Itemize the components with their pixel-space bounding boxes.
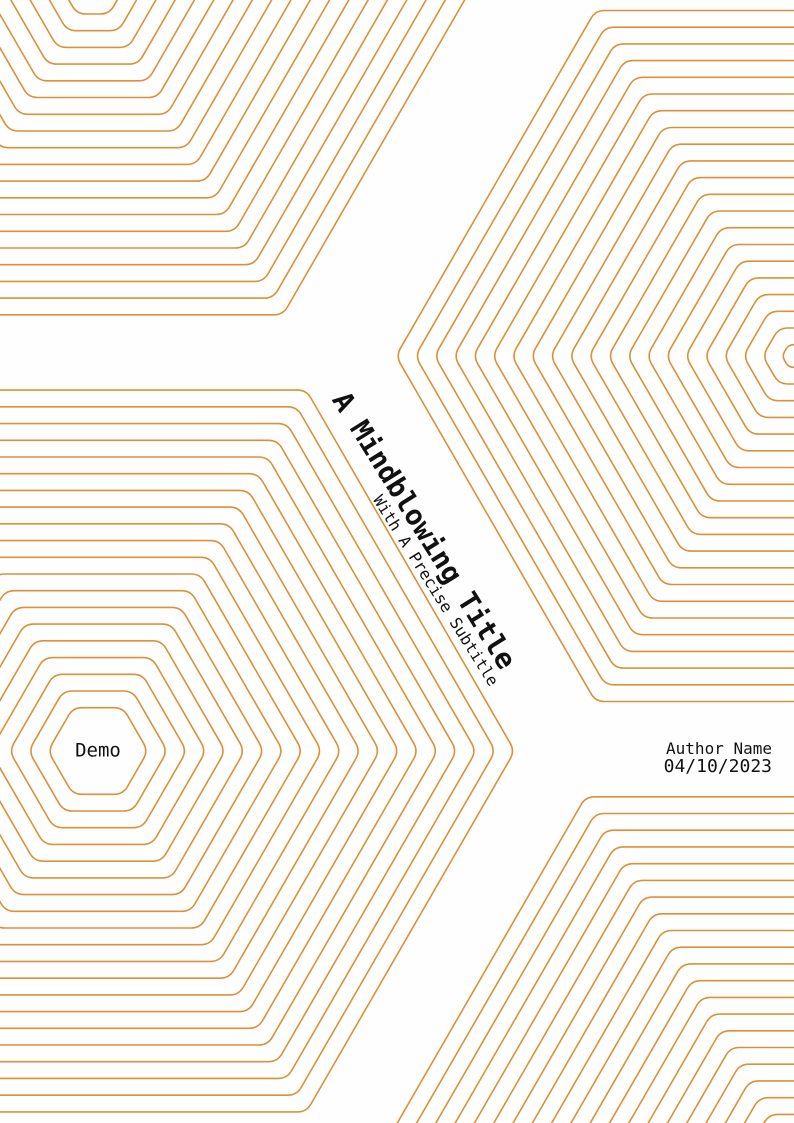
hexagon-ring [0,591,281,912]
hexagon-ring [0,0,316,181]
hexagon-ring [639,1114,794,1123]
hexagon-pattern [0,0,794,1123]
hexagon-ring [630,211,794,501]
hexagon-ring [0,0,374,231]
hexagon-ring [0,0,413,265]
hexagon-ring [746,311,794,400]
hexagon-ring [24,0,161,47]
hexagon-ring [611,194,794,517]
hexagon-ring [408,914,794,1123]
hexagon-ring [514,111,794,602]
hexagon-ring [572,161,794,551]
hexagon-ring [437,44,794,668]
hexagon-ring [649,228,794,485]
hexagon-ring [427,931,794,1123]
hexagon-ring [369,880,794,1123]
hexagon-ring [0,557,319,944]
hexagon-ring [0,0,258,131]
hexagon-ring [765,328,794,384]
hexagon-ring [44,0,143,31]
hexagon-ring [0,524,358,978]
hexagon-ring [0,574,300,928]
hexagon-ring [783,345,794,368]
hexagon-ring [0,0,277,148]
hexagon-ring [0,624,242,878]
hexagon-ring [581,1064,794,1123]
hexagon-ring [0,0,200,81]
demo-label: Demo [75,742,121,761]
hexagon-ring [620,1098,794,1123]
hexagon-ring [0,0,335,198]
hexagon-ring [543,1031,794,1123]
hexagon-ring [0,0,451,298]
author-block: Author Name 04/10/2023 [664,740,772,776]
hexagon-rings [0,0,794,1123]
hexagon-ring [504,997,794,1123]
hexagon-ring [350,864,794,1123]
hexagon-ring [707,278,794,434]
hexagon-ring [292,814,794,1123]
hexagon-ring [330,847,794,1123]
hexagon-ring [0,440,455,1061]
date: 04/10/2023 [664,757,772,776]
hexagon-ring [553,144,794,568]
hexagon-ring [485,981,794,1123]
hexagon-ring [0,457,435,1045]
hexagon-ring [0,0,432,281]
cover-page: A Mindblowing Title With A Precise Subti… [0,0,794,1123]
hexagon-ring [0,490,397,1011]
hexagon-ring [5,0,181,64]
hexagon-ring [63,0,123,14]
hexagon-ring [0,507,377,995]
author-name: Author Name [664,740,772,757]
hexagon-ring [456,61,794,652]
hexagon-ring [446,947,794,1123]
